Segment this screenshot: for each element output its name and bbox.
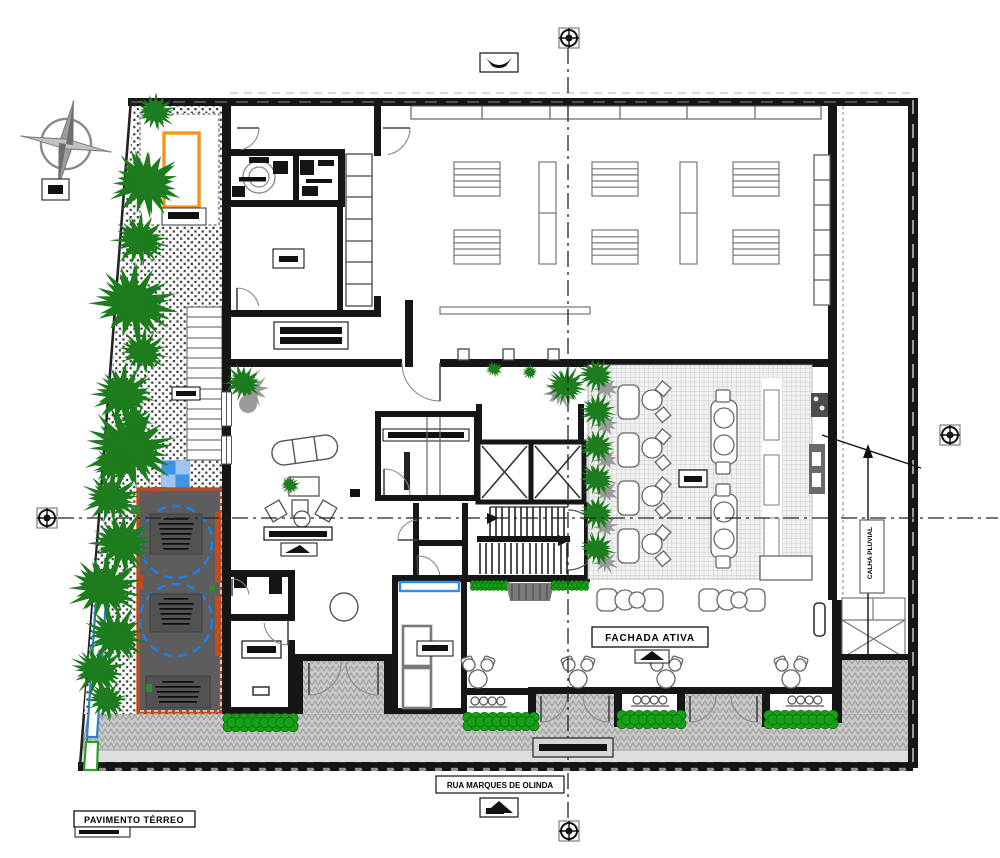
- svg-text:PAVIMENTO TÉRREO: PAVIMENTO TÉRREO: [84, 815, 184, 825]
- svg-text:FACHADA ATIVA: FACHADA ATIVA: [605, 633, 695, 644]
- svg-text:CALHA PLUVIAL: CALHA PLUVIAL: [867, 527, 874, 579]
- svg-text:RUA MARQUES DE OLINDA: RUA MARQUES DE OLINDA: [447, 781, 554, 790]
